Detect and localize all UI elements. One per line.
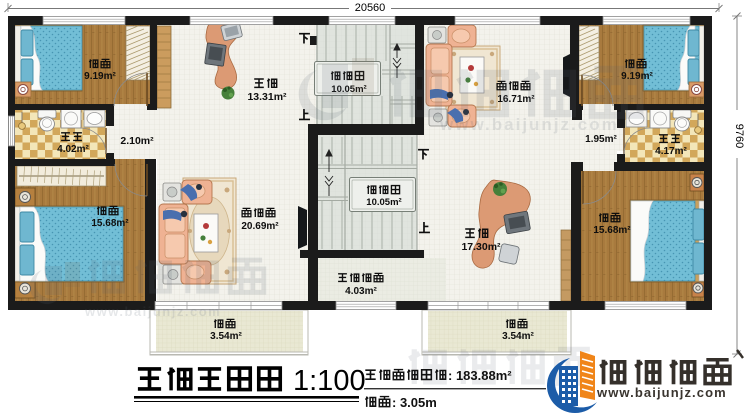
svg-text:: 3.05m: : 3.05m [392, 395, 437, 410]
svg-text:1:100: 1:100 [293, 365, 366, 397]
svg-text:17.30m²: 17.30m² [461, 241, 501, 253]
svg-text:20560: 20560 [355, 2, 386, 14]
svg-text:9.19m²: 9.19m² [84, 71, 116, 82]
svg-text:13.31m²: 13.31m² [247, 91, 287, 103]
svg-text:www.baijunjz.com: www.baijunjz.com [596, 385, 727, 400]
svg-text:4.03m²: 4.03m² [345, 286, 377, 297]
svg-text:2.10m²: 2.10m² [120, 135, 154, 147]
svg-text:20.69m²: 20.69m² [241, 221, 279, 232]
svg-text:: 183.88m²: : 183.88m² [448, 368, 512, 383]
svg-text:15.68m²: 15.68m² [593, 225, 631, 236]
svg-text:9760: 9760 [733, 124, 745, 148]
svg-text:3.54m²: 3.54m² [502, 331, 534, 342]
svg-text:10.05m²: 10.05m² [366, 197, 401, 208]
svg-text:15.68m²: 15.68m² [91, 218, 129, 229]
svg-text:www.baijunjz.com: www.baijunjz.com [439, 115, 619, 134]
svg-text:4.02m²: 4.02m² [57, 144, 89, 155]
svg-text:4.17m²: 4.17m² [655, 146, 687, 157]
svg-text:1.95m²: 1.95m² [585, 134, 617, 145]
svg-text:3.54m²: 3.54m² [210, 331, 242, 342]
svg-text:www.baijunjz.com: www.baijunjz.com [84, 304, 221, 319]
